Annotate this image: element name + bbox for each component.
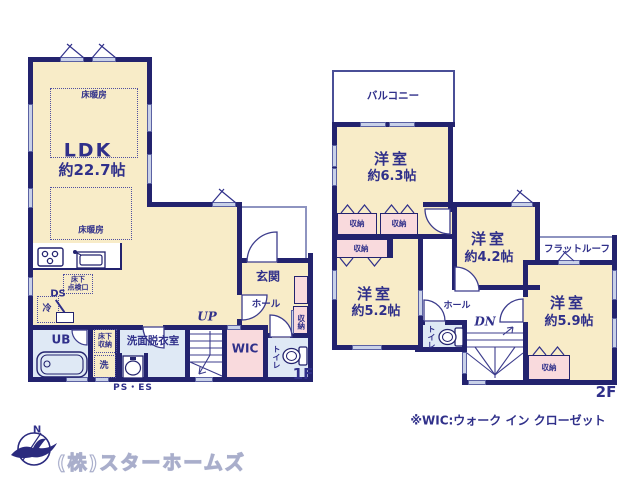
label-storage-2f: 収納 xyxy=(354,245,369,253)
casement-window-icon xyxy=(509,189,535,203)
label-up: UP xyxy=(197,310,217,323)
window-segment xyxy=(360,122,386,127)
label-room59: 洋室 xyxy=(550,295,586,312)
label-storage-2f: 収納 xyxy=(350,220,365,228)
company-logo-text: (株)スターホームズ xyxy=(57,448,246,475)
wall-segment xyxy=(445,320,467,325)
closet-chevron xyxy=(340,258,353,266)
kitchen-counter-edge xyxy=(120,243,122,270)
label-room52: 洋室 xyxy=(357,286,393,303)
ds-duct-box xyxy=(56,312,74,323)
stairs-down xyxy=(467,325,523,380)
label-ps-es: PS・ES xyxy=(113,384,153,394)
label-room63-size: 約6.3帖 xyxy=(367,170,416,184)
label-room42: 洋室 xyxy=(471,231,507,248)
wall-segment xyxy=(147,62,152,207)
closet-chevron xyxy=(368,258,381,266)
wall-segment xyxy=(612,235,617,385)
door-arc xyxy=(424,300,445,321)
closet-chevron xyxy=(533,347,546,355)
wall-segment xyxy=(535,202,540,265)
closet-chevron xyxy=(358,205,371,213)
porch-outline-right xyxy=(305,206,307,260)
genkan-cabinet xyxy=(294,276,308,304)
window-segment xyxy=(332,145,337,167)
label-storage-2f: 収納 xyxy=(542,364,557,372)
label-fridge: 冷 xyxy=(42,305,51,315)
door-arc xyxy=(270,315,292,337)
label-storage-1f: 収納 xyxy=(297,315,305,330)
flat-roof-outline xyxy=(540,236,614,238)
wall-segment xyxy=(237,202,242,295)
door-arc xyxy=(500,299,523,322)
room-ldk-extension xyxy=(147,202,242,332)
window-segment xyxy=(389,122,415,127)
label-flat-roof: フラットルーフ xyxy=(544,245,610,255)
label-balcony: バルコニー xyxy=(367,91,419,103)
label-1f: 1F xyxy=(293,366,314,383)
label-washroom: 洗面脱衣室 xyxy=(127,336,180,348)
label-floor-heating-1: 床暖房 xyxy=(81,91,107,100)
floor-plan-image: 床暖房 LDK 約22.7帖 床暖房 床下点検口 DS 冷 UB 床下収納 洗 … xyxy=(0,0,640,480)
wall-segment xyxy=(144,353,148,380)
label-underfloor: 床下収納 xyxy=(98,333,112,348)
label-room63: 洋室 xyxy=(374,151,410,168)
porch-outline-top xyxy=(242,206,307,208)
label-room52-size: 約5.2帖 xyxy=(351,305,400,319)
label-floor-heating-2: 床暖房 xyxy=(78,226,104,235)
window-segment xyxy=(28,104,33,152)
window-segment xyxy=(352,345,382,350)
door-arc xyxy=(455,267,479,291)
wall-segment xyxy=(388,239,393,258)
window-segment xyxy=(612,270,617,300)
door-arc xyxy=(247,232,277,262)
label-genkan: 玄関 xyxy=(256,270,280,283)
wall-segment xyxy=(523,322,528,385)
window-segment xyxy=(147,154,152,184)
closet-chevron xyxy=(551,347,564,355)
door-arc xyxy=(72,330,87,345)
label-hall-1f: ホール xyxy=(252,300,281,310)
label-toilet-2f: トイレ xyxy=(427,325,435,349)
casement-window-icon xyxy=(90,43,118,58)
closet-chevron xyxy=(341,205,354,213)
label-ds: DS xyxy=(50,289,66,300)
label-dn: DN xyxy=(474,315,495,328)
window-segment xyxy=(468,380,486,385)
washbasin-icon xyxy=(122,355,144,379)
wall-segment xyxy=(308,253,313,382)
label-wic-1f: WIC xyxy=(232,342,259,355)
kitchen-sink-icon xyxy=(71,249,107,269)
wall-segment xyxy=(479,285,540,290)
label-2f: 2F xyxy=(596,384,617,401)
label-hall-2f: ホール xyxy=(443,302,470,312)
label-hatch: 床下点検口 xyxy=(68,276,89,291)
bathtub-icon xyxy=(36,351,88,378)
casement-window-icon xyxy=(210,188,238,203)
window-segment xyxy=(147,104,152,132)
window-segment xyxy=(28,188,33,208)
label-room42-size: 約4.2帖 xyxy=(464,251,513,265)
label-storage-2f: 収納 xyxy=(392,220,407,228)
sliding-door-wic xyxy=(227,325,241,330)
wall-segment xyxy=(448,127,453,212)
label-ldk-size: 約22.7帖 xyxy=(58,162,125,179)
wall-segment xyxy=(222,327,227,382)
window-segment xyxy=(612,318,617,348)
casement-window-icon xyxy=(58,43,86,58)
toilet-icon xyxy=(282,345,308,367)
window-segment xyxy=(332,168,337,186)
toilet-icon xyxy=(438,326,464,348)
label-ldk: LDK xyxy=(64,141,113,162)
closet-chevron xyxy=(385,205,398,213)
wall-segment xyxy=(277,258,308,263)
wall-segment xyxy=(88,330,93,377)
sliding-door-52 xyxy=(418,290,423,316)
door-arc xyxy=(425,209,450,234)
wic-note: ※WIC:ウォーク イン クローゼット xyxy=(410,414,605,427)
stove-icon xyxy=(37,247,64,267)
stairs-up xyxy=(190,327,222,380)
window-segment xyxy=(28,277,33,296)
label-ub: UB xyxy=(52,333,71,346)
label-room59-size: 約5.9帖 xyxy=(544,315,593,329)
closet-chevron xyxy=(401,205,414,213)
label-toilet-1f: トイレ xyxy=(272,345,280,369)
window-segment xyxy=(332,270,337,300)
wall-segment xyxy=(523,260,528,297)
label-washer: 洗 xyxy=(99,362,108,372)
compass-n-label: N xyxy=(33,425,41,436)
